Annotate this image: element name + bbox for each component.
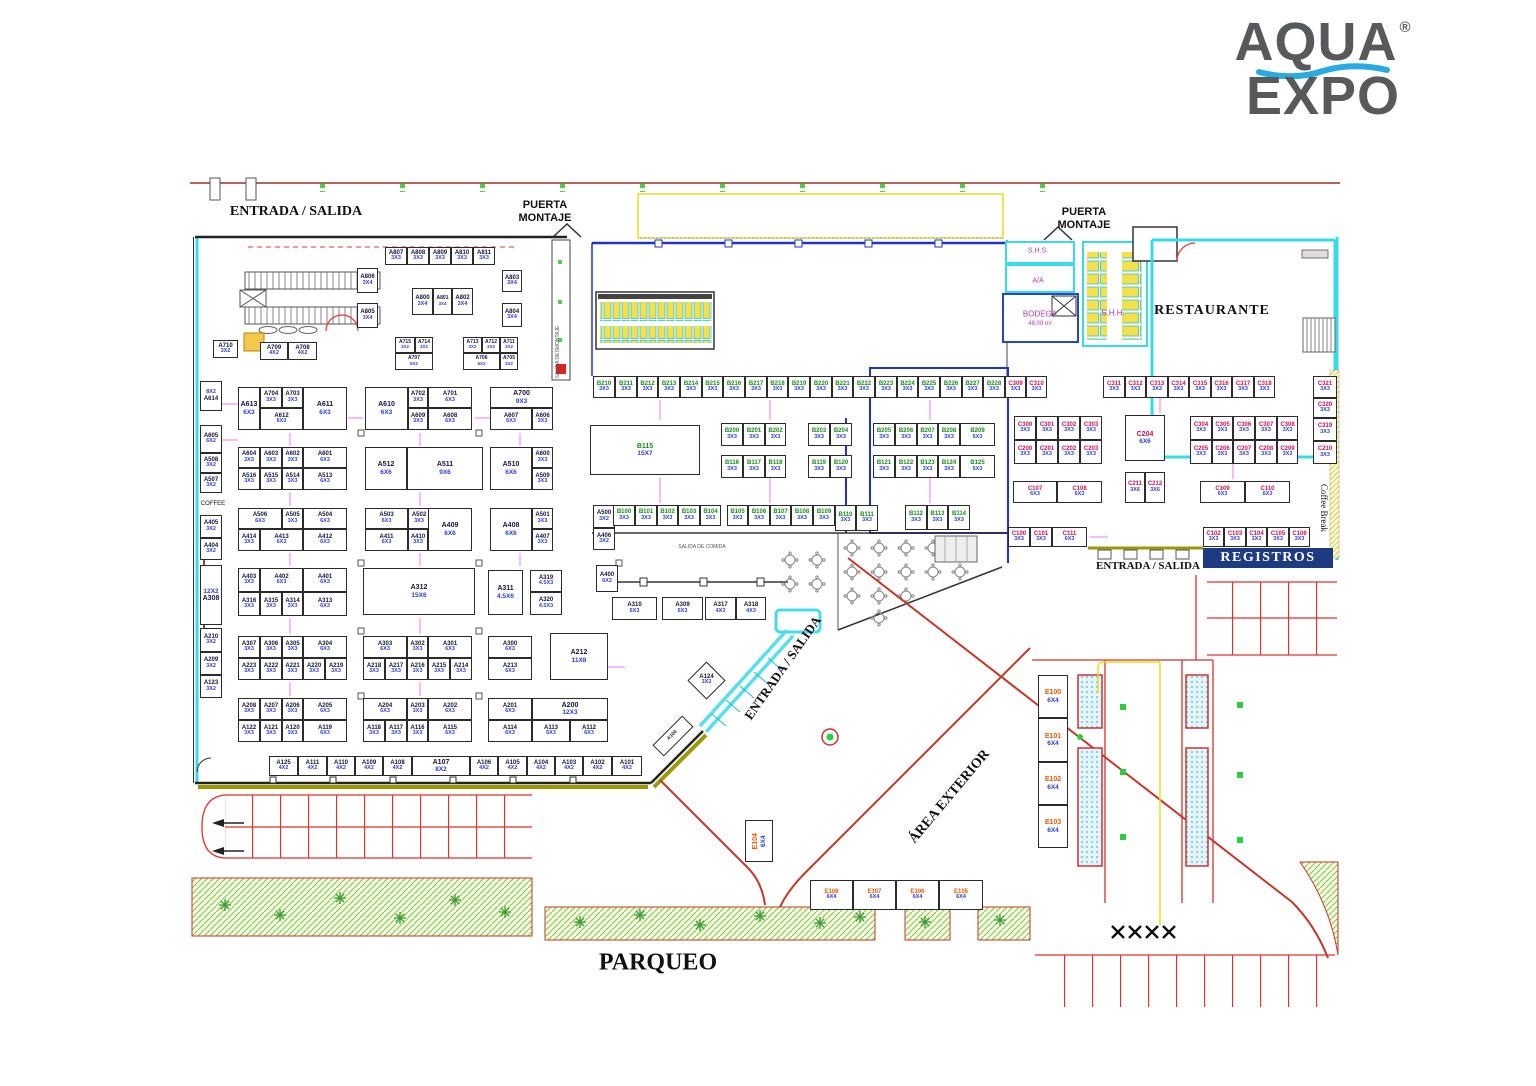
- booth-A400: A4006X2: [596, 565, 618, 592]
- label-aa: A/A: [1032, 278, 1043, 285]
- booth-A505: A5053X3: [282, 508, 303, 529]
- booth-B212: B2123X3: [637, 376, 658, 398]
- booth-C111: C1116X3: [1052, 527, 1087, 547]
- booth-A110: A1104X2: [327, 756, 355, 776]
- booth-A215: A2153X3: [428, 658, 450, 680]
- booth-A222: A2223X3: [260, 658, 282, 680]
- booth-C204: C2046X6: [1125, 415, 1165, 461]
- booth-A504: A5046X3: [303, 508, 347, 529]
- booth-A202: A2026X3: [428, 698, 472, 720]
- booth-A406: A4063X2: [593, 528, 615, 550]
- booth-A414: A4143X3: [238, 529, 260, 551]
- booth-E103: E1036X4: [1038, 805, 1068, 848]
- booth-A604: A6043X3: [238, 447, 260, 468]
- booth-C101: C1013X3: [1030, 527, 1052, 547]
- logo-word-expo: EXPO: [1218, 72, 1428, 122]
- booth-A217: A2173X3: [385, 658, 407, 680]
- booth-A706: A7066X2: [463, 353, 500, 370]
- booth-B115: B11515X7: [590, 425, 700, 475]
- booth-C313: C3133X3: [1146, 376, 1168, 398]
- booth-B119: B1193X3: [808, 455, 830, 478]
- booth-A803: A8033X4: [502, 270, 522, 292]
- label-salida-desmontaje: SALIDA DESMONTAJE: [555, 326, 561, 379]
- booth-B209: B2095X3: [960, 423, 995, 446]
- booth-A125: A1254X2: [269, 756, 298, 776]
- booth-A113: A1136X3: [532, 720, 570, 742]
- label-entrada-salida-top-left: ENTRADA / SALIDA: [230, 204, 362, 220]
- booth-A605: A6056X2: [200, 425, 222, 453]
- booth-A119: A1196X3: [303, 720, 347, 742]
- booth-C102: C1023X3: [1203, 527, 1224, 547]
- label-bodega: BODEGA: [1023, 310, 1057, 319]
- booth-A515: A5153X3: [260, 468, 282, 490]
- booth-B215: B2153X3: [702, 376, 723, 398]
- booth-A408: A4086X6: [490, 508, 532, 551]
- booth-A509: A5093X3: [532, 468, 553, 490]
- booth-C308: C3083X3: [1277, 416, 1298, 440]
- booth-C212: C2123X6: [1145, 472, 1165, 503]
- booth-A712: A7123X2: [482, 337, 500, 353]
- booth-A201: A2016X3: [488, 698, 532, 720]
- booth-B211: B2113X3: [615, 376, 637, 398]
- booth-A205: A2056X3: [303, 698, 347, 720]
- aqua-expo-logo: AQUA® EXPO: [1218, 18, 1428, 121]
- booth-B120: B1203X3: [830, 455, 852, 478]
- booth-A311: A3114.5X6: [488, 570, 523, 615]
- booth-C314: C3143X3: [1168, 376, 1189, 398]
- booth-B208: B2083X3: [938, 423, 960, 446]
- booth-C100: C1003X3: [1008, 527, 1030, 547]
- booth-A516: A5163X3: [238, 468, 260, 490]
- booth-A801: A8013X4: [433, 288, 452, 315]
- booth-A320: A3204.5X3: [530, 592, 562, 615]
- booth-A409: A4096X6: [428, 508, 472, 551]
- booth-A221: A2213X3: [282, 658, 303, 680]
- booth-A802: A8023X4: [452, 288, 473, 315]
- booth-B227: B2273X3: [962, 376, 983, 398]
- booth-A302: A3023X3: [407, 636, 428, 658]
- booth-A208: A2083X3: [238, 698, 260, 720]
- booth-B222: B2223X3: [853, 376, 875, 398]
- booth-A411: A4116X3: [365, 529, 408, 551]
- booth-A611: A6116X3: [303, 387, 347, 430]
- booth-A702: A7023X3: [408, 387, 428, 408]
- booth-A705: A7053X2: [500, 353, 518, 370]
- booth-C103: C1033X3: [1224, 527, 1246, 547]
- booth-A709: A7094X2: [260, 342, 288, 360]
- booth-B101: B1013X3: [635, 505, 657, 526]
- booth-A121: A1213X3: [260, 720, 282, 742]
- booth-A405: A4053X2: [200, 515, 222, 538]
- booth-B205: B2053X3: [873, 423, 895, 446]
- booth-C108: C1086X3: [1057, 481, 1102, 503]
- booth-A402: A4026X3: [260, 568, 303, 592]
- booth-A607: A6076X3: [490, 408, 532, 430]
- booth-A711: A7113X2: [500, 337, 518, 353]
- booth-A805: A8053X4: [357, 303, 378, 328]
- booth-A308: 12X2A308: [200, 565, 222, 625]
- booth-C208: C2083X3: [1255, 440, 1277, 464]
- booth-B105: B1053X3: [727, 505, 748, 526]
- booth-E106: E1066X4: [896, 880, 939, 910]
- booth-A806: A8063X4: [357, 268, 378, 293]
- booth-B226: B2263X3: [940, 376, 962, 398]
- booth-A319: A3194.5X3: [530, 570, 562, 592]
- booth-A601: A6016X3: [303, 447, 347, 468]
- booth-B110: B1103X3: [835, 505, 856, 531]
- booth-A101: A1014X2: [612, 756, 642, 776]
- booth-A210: A2103X2: [200, 628, 222, 652]
- booth-C307: C3073X3: [1255, 416, 1277, 440]
- booth-A808: A8083X3: [407, 247, 429, 265]
- label-restaurante: RESTAURANTE: [1154, 303, 1270, 319]
- booth-C200: C2003X3: [1014, 440, 1036, 464]
- booth-A316: A3163X3: [238, 592, 260, 616]
- booth-A500: A5003X2: [593, 505, 615, 528]
- booth-A214: A2143X3: [450, 658, 472, 680]
- booth-B201: B2013X3: [743, 423, 765, 446]
- booth-A811: A8113X3: [473, 247, 495, 265]
- booth-A602: A6023X3: [282, 447, 303, 468]
- booth-B228: B2283X3: [983, 376, 1005, 398]
- label-shh: S.H.H.: [1101, 309, 1125, 318]
- booth-A715: A7153X2: [395, 337, 415, 353]
- booth-B111: B1113X3: [856, 505, 878, 531]
- label-entrada-salida-bottom-right: ENTRADA / SALIDA: [1096, 560, 1200, 572]
- booth-C210: C2103X3: [1313, 441, 1337, 464]
- booth-C105: C1053X3: [1267, 527, 1289, 547]
- label-puerta-montaje-right-line1: PUERTA: [1062, 206, 1106, 218]
- booth-A207: A2073X3: [260, 698, 282, 720]
- booth-A106: A1064X2: [470, 756, 498, 776]
- booth-A511: A5119X6: [407, 447, 483, 490]
- booth-B109: B1093X3: [813, 505, 835, 526]
- booth-A203: A2033X3: [407, 698, 428, 720]
- booth-B123: B1233X3: [917, 455, 938, 478]
- booth-B216: B2163X3: [723, 376, 745, 398]
- booth-A809: A8093X3: [429, 247, 451, 265]
- booth-A404: A4043X2: [200, 538, 222, 560]
- booth-C305: C3053X3: [1212, 416, 1233, 440]
- booth-B118: B1183X3: [765, 455, 786, 478]
- booth-A314: A3143X3: [282, 592, 303, 616]
- booth-A309: A3096X3: [662, 597, 703, 620]
- booth-B206: B2063X3: [895, 423, 917, 446]
- booth-B221: B2213X3: [832, 376, 853, 398]
- booth-C107: C1076X3: [1013, 481, 1057, 503]
- booth-B219: B2193X3: [788, 376, 810, 398]
- booth-E100: E1006X4: [1038, 675, 1068, 718]
- booth-A614: 8X2A614: [200, 381, 222, 411]
- booth-B204: B2043X3: [830, 423, 852, 446]
- booth-A301: A3016X3: [428, 636, 472, 658]
- booth-A807: A8073X3: [385, 247, 407, 265]
- booth-C310: C3103X3: [1026, 376, 1047, 398]
- label-shs: S.H.S.: [1028, 248, 1048, 255]
- booth-C315: C3153X3: [1189, 376, 1211, 398]
- booth-A514: A5143X3: [282, 468, 303, 490]
- booth-B225: B2253X3: [918, 376, 940, 398]
- registros-banner: REGISTROS: [1203, 548, 1333, 568]
- label-salida-de-comida: SALIDA DE COMIDA: [678, 544, 725, 550]
- booth-B213: B2133X3: [658, 376, 680, 398]
- booth-E104: E1046X4: [745, 820, 773, 862]
- booth-C317: C3173X3: [1232, 376, 1254, 398]
- booth-A701: A7016X3: [428, 387, 472, 408]
- booth-B217: B2173X3: [745, 376, 767, 398]
- booth-A107: A1078X2: [412, 756, 470, 776]
- booth-A114: A1146X3: [488, 720, 532, 742]
- label-bodega-area: 48.09 m²: [1028, 321, 1052, 327]
- booth-A206: A2063X3: [282, 698, 303, 720]
- booth-A710: A7103X2: [213, 340, 238, 358]
- booth-A117: A1173X3: [385, 720, 407, 742]
- booth-A219: A2193X3: [325, 658, 347, 680]
- booth-E105: E1056X4: [939, 880, 983, 910]
- booth-A613: A6136X3: [238, 387, 260, 430]
- booth-B122: B1223X3: [895, 455, 917, 478]
- booth-A510: A5106X6: [490, 447, 532, 490]
- booth-A103: A1034X2: [555, 756, 583, 776]
- booth-B106: B1063X3: [748, 505, 770, 526]
- booth-B210: B2103X3: [593, 376, 615, 398]
- booth-A120: A1203X3: [282, 720, 303, 742]
- booth-B203: B2033X3: [808, 423, 830, 446]
- booth-A503: A5036X3: [365, 508, 408, 529]
- booth-A810: A8103X3: [451, 247, 473, 265]
- booth-C316: C3163X3: [1211, 376, 1232, 398]
- booth-A307: A3073X3: [238, 636, 260, 658]
- booth-A501: A5013X3: [532, 508, 553, 529]
- booth-A200: A20012X3: [532, 698, 608, 720]
- label-puerta-montaje-left-line1: PUERTA: [523, 199, 567, 211]
- booth-B104: B1043X3: [700, 505, 721, 526]
- booth-B100: B1003X3: [613, 505, 635, 526]
- booth-C206: C2063X3: [1212, 440, 1233, 464]
- booth-A220: A2203X3: [303, 658, 325, 680]
- registered-mark-icon: ®: [1399, 19, 1411, 36]
- booth-B202: B2023X3: [765, 423, 786, 446]
- booth-A403: A4033X3: [238, 568, 260, 592]
- booth-A608: A6086X3: [428, 408, 472, 430]
- booth-B112: B1123X3: [905, 505, 927, 530]
- booth-B220: B2203X3: [810, 376, 832, 398]
- booth-B207: B2073X3: [917, 423, 938, 446]
- booth-C209: C2093X3: [1277, 440, 1298, 464]
- booth-C301: C3013X3: [1036, 416, 1058, 440]
- booth-E107: E1076X4: [853, 880, 896, 910]
- booth-A104: A1044X2: [527, 756, 555, 776]
- booth-A310: A3106X3: [612, 597, 657, 620]
- booth-B214: B2143X3: [680, 376, 702, 398]
- booth-A401: A4016X3: [303, 568, 347, 592]
- booth-A212: A21211X8: [550, 633, 608, 680]
- booth-B102: B1023X3: [657, 505, 678, 526]
- booth-A507: A5073X2: [200, 473, 222, 493]
- booth-A502: A5023X3: [408, 508, 430, 529]
- logo-word-aqua: AQUA®: [1218, 18, 1428, 68]
- booth-A318: A3184X3: [736, 597, 766, 620]
- booth-B113: B1133X3: [927, 505, 948, 530]
- booth-C201: C2013X3: [1036, 440, 1058, 464]
- booth-A216: A2163X3: [407, 658, 428, 680]
- booth-A123: A1233X2: [200, 675, 222, 698]
- booth-C304: C3043X3: [1190, 416, 1212, 440]
- booth-A105: A1054X2: [498, 756, 527, 776]
- booth-B218: B2183X3: [767, 376, 788, 398]
- booth-E108: E1086X4: [810, 880, 853, 910]
- booth-A115: A1156X3: [428, 720, 472, 742]
- booth-A312: A31215X6: [363, 568, 475, 615]
- booth-A300: A3006X3: [488, 636, 532, 658]
- booth-C207: C2073X3: [1233, 440, 1255, 464]
- booth-A303: A3036X3: [363, 636, 407, 658]
- booth-C300: C3003X3: [1014, 416, 1036, 440]
- booth-A407: A4073X3: [532, 529, 553, 551]
- booth-A704: A7043X3: [260, 387, 282, 408]
- booth-C312: C3123X3: [1125, 376, 1146, 398]
- booth-C306: C3063X3: [1233, 416, 1255, 440]
- floorplan: A8073X3A8083X3A8093X3A8103X3A8113X3A8063…: [0, 0, 1536, 1086]
- booth-A122: A1223X3: [238, 720, 260, 742]
- booth-B200: B2003X3: [721, 423, 743, 446]
- booth-C110: C1106X3: [1245, 481, 1290, 503]
- booth-A111: A1114X2: [298, 756, 327, 776]
- booth-C106: C1063X3: [1289, 527, 1310, 547]
- booth-C320: C3203X3: [1313, 398, 1337, 418]
- booth-A304: A3046X3: [303, 636, 347, 658]
- booth-A102: A1024X2: [583, 756, 612, 776]
- booth-A315: A3153X3: [260, 592, 282, 616]
- label-coffee: COFFEE: [201, 501, 225, 507]
- booth-C109: C1096X3: [1200, 481, 1245, 503]
- booth-A713: A7133X2: [463, 337, 482, 353]
- booth-A313: A3136X3: [303, 592, 347, 616]
- booth-A109: A1094X2: [355, 756, 383, 776]
- booth-A700: A7009X3: [490, 387, 553, 408]
- label-puerta-montaje-left-line2: MONTAJE: [519, 212, 572, 224]
- label-coffee-break: Coffee Break: [1319, 484, 1329, 532]
- booth-C104: C1043X3: [1246, 527, 1267, 547]
- booth-C302: C3023X3: [1058, 416, 1080, 440]
- booth-A223: A2233X3: [238, 658, 260, 680]
- booth-C309: C3093X3: [1005, 376, 1026, 398]
- booth-A707: A7076X2: [395, 353, 433, 370]
- booth-A108: A1084X2: [383, 756, 412, 776]
- booth-B121: B1213X3: [873, 455, 895, 478]
- booth-A118: A1183X3: [363, 720, 385, 742]
- booth-C319: C3193X3: [1313, 418, 1337, 441]
- booth-A606: A6063X3: [532, 408, 553, 430]
- booth-A410: A4103X3: [408, 529, 428, 551]
- booth-A209: A2093X2: [200, 652, 222, 675]
- booth-A213: A2136X3: [488, 658, 532, 680]
- booth-A714: A7143X2: [415, 337, 433, 353]
- booth-B108: B1083X3: [791, 505, 813, 526]
- booth-A508: A5083X2: [200, 453, 222, 473]
- booth-A612: A6126X3: [260, 408, 303, 430]
- booth-C321: C3213X3: [1313, 376, 1337, 398]
- booth-B116: B1163X3: [721, 455, 743, 478]
- booth-A218: A2183X3: [363, 658, 385, 680]
- booth-A116: A1163X3: [407, 720, 428, 742]
- booth-A506: A5066X3: [238, 508, 282, 529]
- booth-B107: B1073X3: [770, 505, 791, 526]
- booth-A204: A2046X3: [363, 698, 407, 720]
- booth-B103: B1033X3: [678, 505, 700, 526]
- booth-A412: A4126X3: [303, 529, 347, 551]
- booth-A708: A7084X2: [288, 342, 317, 360]
- booth-B114: B1143X3: [948, 505, 970, 530]
- booth-A413: A4136X3: [260, 529, 303, 551]
- booth-C303: C3033X3: [1080, 416, 1102, 440]
- booth-A609: A6093X3: [408, 408, 428, 430]
- booth-A305: A3053X3: [282, 636, 303, 658]
- booth-C202: C2023X3: [1058, 440, 1080, 464]
- booth-A600: A6003X3: [532, 447, 553, 468]
- booth-E101: E1016X4: [1038, 718, 1068, 762]
- booth-C211: C2113X6: [1125, 472, 1145, 503]
- booth-A610: A6106X3: [365, 387, 408, 430]
- label-puerta-montaje-right-line2: MONTAJE: [1058, 219, 1111, 231]
- booth-A306: A3063X3: [260, 636, 282, 658]
- booth-B125: B1255X3: [960, 455, 995, 478]
- booth-C318: C3183X3: [1254, 376, 1275, 398]
- booth-E102: E1026X4: [1038, 762, 1068, 805]
- booth-A603: A6033X3: [260, 447, 282, 468]
- booth-A112: A1126X3: [570, 720, 608, 742]
- booth-A512: A5126X6: [365, 447, 407, 490]
- label-parqueo: PARQUEO: [599, 950, 717, 977]
- booth-A703: A7033X3: [282, 387, 303, 408]
- booth-A804: A8043X4: [502, 303, 522, 327]
- booth-C203: C2033X3: [1080, 440, 1102, 464]
- booth-B224: B2243X3: [897, 376, 918, 398]
- booth-A800: A8003X4: [412, 288, 433, 315]
- booth-C311: C3113X3: [1103, 376, 1125, 398]
- booth-A513: A5136X3: [303, 468, 347, 490]
- booth-B124: B1243X3: [938, 455, 960, 478]
- booth-B117: B1173X3: [743, 455, 765, 478]
- booth-C205: C2053X3: [1190, 440, 1212, 464]
- booth-B223: B2233X3: [875, 376, 897, 398]
- booth-A317: A3174X3: [705, 597, 736, 620]
